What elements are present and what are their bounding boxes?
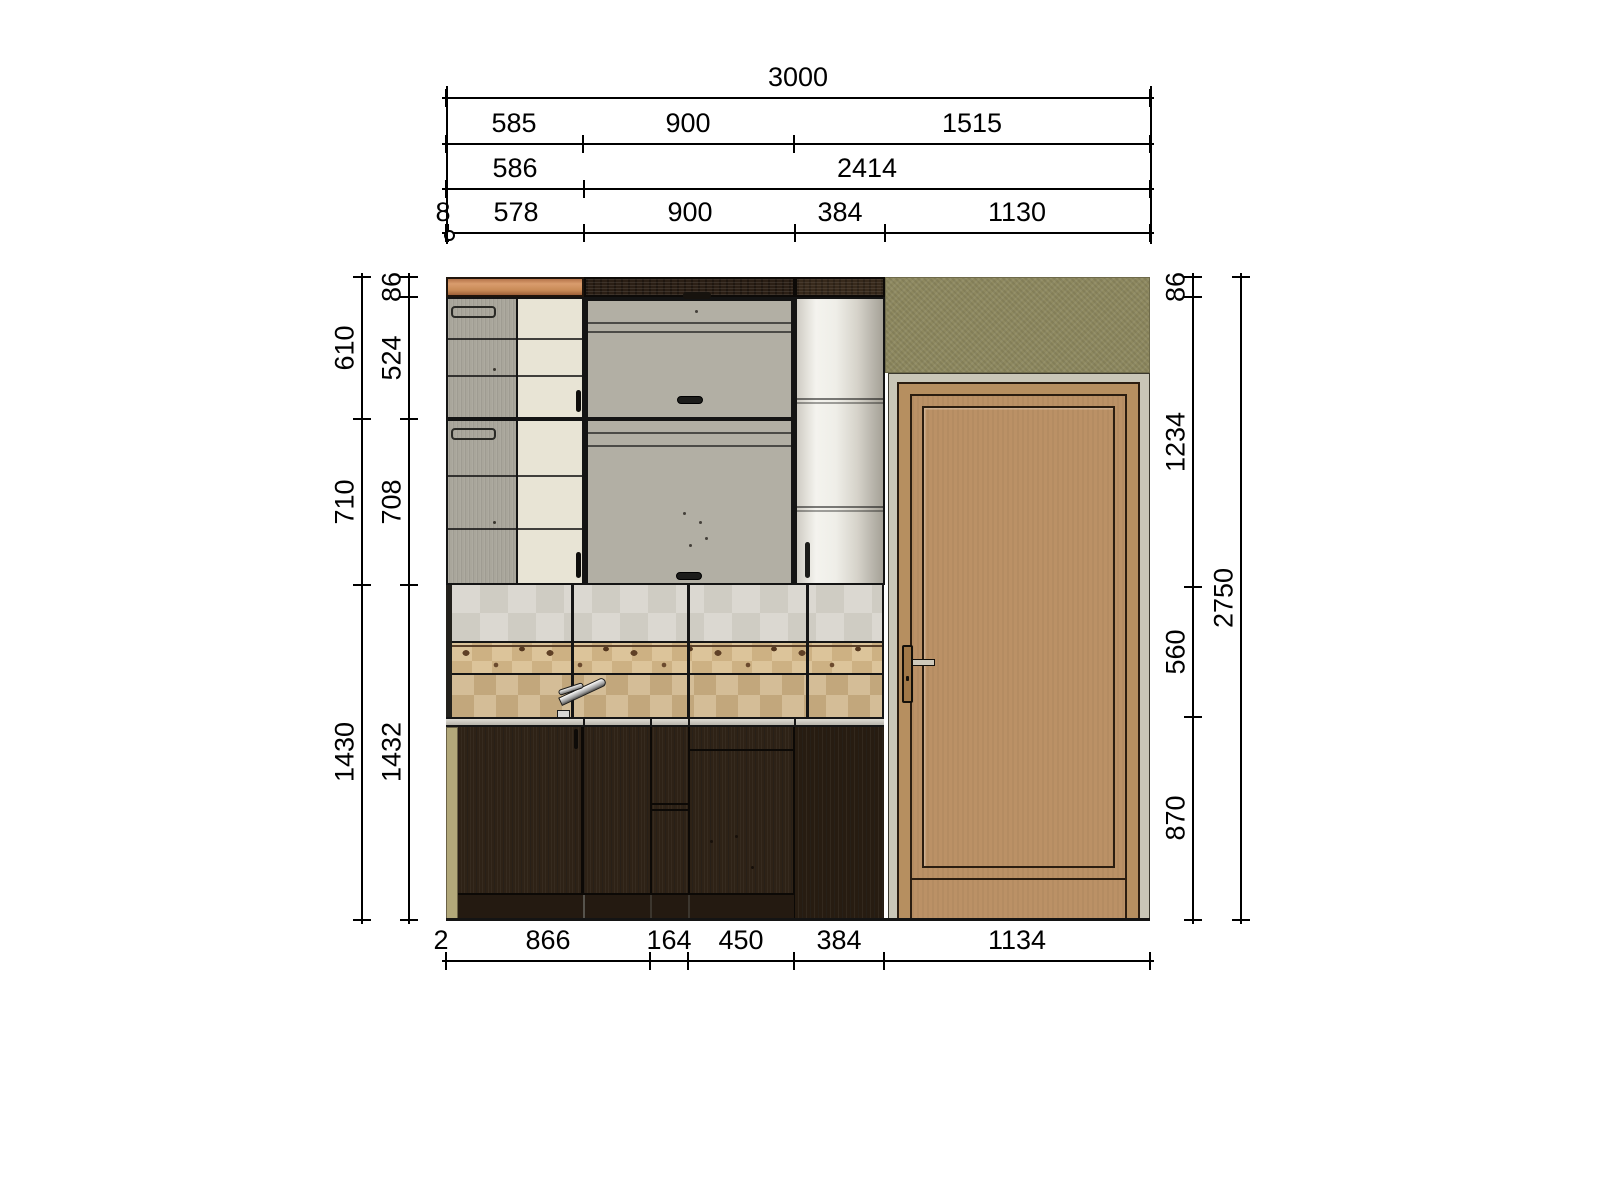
dim-line (442, 960, 1154, 962)
dim-label-610: 610 (332, 325, 359, 370)
dim-label-1430: 1430 (332, 722, 359, 782)
dim-tick (1184, 716, 1202, 718)
dim-label-86: 86 (379, 272, 406, 302)
dim-line (442, 97, 1154, 99)
dim-tick (583, 180, 585, 198)
dim-line (442, 143, 1154, 145)
dim-tick (1232, 919, 1250, 921)
extension-line (446, 86, 448, 244)
dim-tick (1184, 919, 1202, 921)
dim-label-870: 870 (1163, 795, 1190, 840)
dim-line (408, 273, 410, 924)
dim-tick (353, 276, 371, 278)
dim-label-2414: 2414 (837, 155, 897, 182)
dim-label-1234: 1234 (1163, 412, 1190, 472)
dim-label-900: 900 (667, 199, 712, 226)
dim-label-524: 524 (379, 335, 406, 380)
dim-tick (400, 418, 418, 420)
dim-label-164: 164 (646, 927, 691, 954)
dim-tick (1184, 586, 1202, 588)
dim-tick (794, 224, 796, 242)
dim-tick (353, 584, 371, 586)
dim-label-86: 86 (1163, 272, 1190, 302)
dim-label-1515: 1515 (942, 110, 1002, 137)
dim-label-578: 578 (493, 199, 538, 226)
dim-label-1134: 1134 (988, 927, 1046, 954)
dim-label-384: 384 (817, 199, 862, 226)
dim-label-1432: 1432 (379, 722, 406, 782)
dim-tick (353, 919, 371, 921)
dim-tick (583, 224, 585, 242)
dim-label-866: 866 (525, 927, 570, 954)
dim-tick (1232, 276, 1250, 278)
dim-label-560: 560 (1163, 629, 1190, 674)
dim-label-2750: 2750 (1211, 568, 1238, 628)
dim-label-708: 708 (379, 479, 406, 524)
extension-line (1150, 86, 1152, 244)
dim-line (1192, 273, 1194, 924)
dim-label-384: 384 (816, 927, 861, 954)
dim-line (442, 188, 1154, 190)
dim-label-2: 2 (433, 927, 448, 954)
dim-tick (582, 135, 584, 153)
dim-tick (884, 224, 886, 242)
elevation-sheet: 3000585900151558624148578900384113028661… (0, 0, 1600, 1200)
dim-tick (1149, 952, 1151, 970)
dim-tick (353, 418, 371, 420)
dim-label-900: 900 (665, 110, 710, 137)
dim-tick (793, 135, 795, 153)
dim-tick (400, 919, 418, 921)
dim-label-3000: 3000 (768, 64, 828, 91)
dim-label-1130: 1130 (988, 199, 1046, 226)
dim-line (442, 232, 1154, 234)
dim-label-586: 586 (492, 155, 537, 182)
dim-label-450: 450 (718, 927, 763, 954)
dim-label-710: 710 (332, 479, 359, 524)
dim-line (361, 273, 363, 924)
dim-label-585: 585 (491, 110, 536, 137)
dimension-layer: 3000585900151558624148578900384113028661… (0, 0, 1600, 1200)
dim-line (1240, 273, 1242, 924)
dim-label-8: 8 (435, 199, 450, 226)
dim-tick (400, 584, 418, 586)
dim-tick (883, 952, 885, 970)
dim-tick (793, 952, 795, 970)
